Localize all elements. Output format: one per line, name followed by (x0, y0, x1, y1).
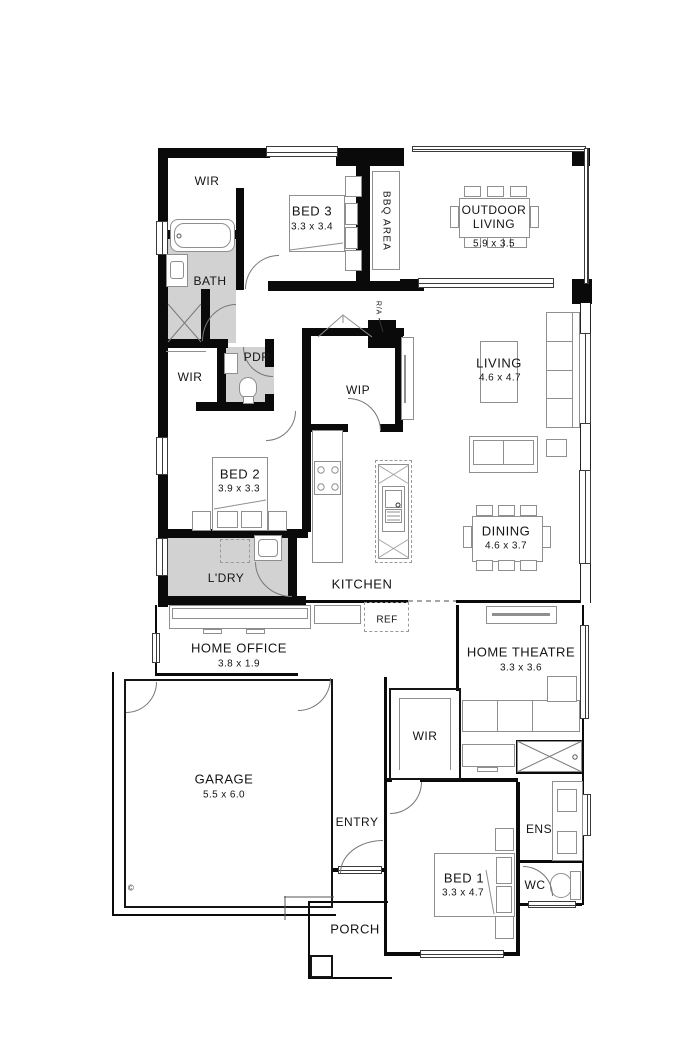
label-bbq-area: BBQ AREA (381, 191, 392, 251)
window (152, 633, 160, 663)
furniture-line (503, 440, 504, 465)
office-desk-top (172, 608, 308, 619)
room-dims-living: 4.6 x 4.7 (479, 373, 521, 384)
chair (520, 505, 537, 516)
chair (476, 560, 493, 571)
room-label-wc: WC (525, 878, 546, 892)
sink-bowl (385, 490, 402, 508)
wall-segment (112, 672, 114, 916)
copyright-mark: © (128, 884, 134, 893)
window (579, 333, 591, 424)
bedside-table (345, 176, 362, 197)
side-table (546, 439, 567, 457)
wall-segment (336, 148, 404, 166)
wall-segment (368, 320, 396, 348)
window (584, 148, 589, 284)
window (582, 794, 591, 836)
bedside-table (495, 828, 514, 851)
room-dims-home-office: 3.8 x 1.9 (218, 659, 260, 670)
bathtub-inner (174, 223, 231, 248)
wall-segment (158, 596, 306, 605)
furniture-line (399, 698, 451, 699)
door-swing (390, 782, 422, 814)
window (156, 437, 168, 475)
door-swing (266, 411, 296, 441)
furniture-line (497, 700, 498, 732)
room-label-wir-bed1: WIR (413, 729, 438, 743)
drawer (203, 629, 222, 634)
window (580, 625, 589, 719)
furniture-line (399, 698, 400, 770)
room-label-outdoor-living: OUTDOOR LIVING (455, 204, 533, 232)
wall-segment (268, 281, 370, 291)
room-dims-garage: 5.5 x 6.0 (203, 790, 245, 801)
door-swing (340, 840, 383, 873)
window (266, 146, 338, 157)
room-dims-outdoor-living: 5.9 x 3.5 (473, 239, 515, 250)
room-label-home-office: HOME OFFICE (191, 641, 287, 656)
window (579, 470, 591, 564)
tv-unit (401, 337, 414, 420)
washing-machine-space (220, 539, 250, 563)
room-label-wir-top: WIR (195, 174, 220, 188)
room-label-kitchen: KITCHEN (332, 577, 393, 592)
door-swing (348, 398, 381, 431)
kitchen-bench (312, 430, 343, 563)
wall-segment (384, 677, 387, 782)
room-dims-bed3: 3.3 x 3.4 (291, 222, 333, 233)
chair (542, 526, 551, 548)
room-label-home-theatre: HOME THEATRE (467, 645, 575, 660)
wall-segment (456, 600, 590, 603)
window (156, 538, 168, 576)
drawer (477, 767, 498, 772)
pillow (496, 886, 512, 913)
furniture-line (546, 398, 572, 399)
room-label-garage: GARAGE (195, 772, 254, 787)
wall-segment (516, 782, 520, 956)
furniture-line (546, 341, 572, 342)
drawer (246, 629, 265, 634)
chair (498, 505, 515, 516)
chair (520, 560, 537, 571)
wall-segment (236, 188, 244, 290)
room-dims-bed2: 3.9 x 3.3 (218, 484, 260, 495)
bedside-table (345, 250, 362, 271)
basin (557, 789, 577, 812)
room-label-ens: ENS (526, 822, 552, 836)
room-label-dining: DINING (482, 524, 531, 539)
room-label-bed2: BED 2 (220, 467, 260, 482)
pdr-vanity (224, 353, 238, 374)
wall-segment (265, 394, 274, 403)
pillow (345, 203, 358, 225)
bedside-table (268, 511, 287, 531)
chaise (547, 676, 577, 702)
wall-segment (158, 148, 270, 158)
room-label-ldry: L'DRY (208, 571, 244, 585)
furniture-line (492, 613, 550, 616)
room-label-pdr: PDR (244, 350, 271, 364)
window (412, 146, 586, 152)
label-return-air: R/A (375, 301, 382, 315)
wall-segment (380, 424, 403, 432)
shower (517, 741, 582, 772)
furniture-line (546, 370, 572, 371)
window (420, 950, 504, 958)
bedside-table (192, 511, 211, 531)
chair (476, 505, 493, 516)
room-dims-bed1: 3.3 x 4.7 (442, 888, 484, 899)
room-label-bed1: BED 1 (444, 871, 484, 886)
window (418, 278, 554, 288)
room-label-porch: PORCH (330, 922, 380, 937)
wc-toilet (550, 873, 572, 898)
room-label-living: LIVING (476, 356, 522, 371)
cooktop (314, 461, 341, 495)
chair (487, 186, 504, 197)
pdr-toilet-tank (243, 396, 254, 404)
tv-cabinet (462, 744, 515, 767)
wall-segment (456, 605, 459, 691)
room-dims-dining: 4.6 x 3.7 (485, 541, 527, 552)
window (156, 221, 168, 255)
porch-pillar (310, 955, 333, 978)
chair (463, 526, 472, 548)
wall-segment (155, 673, 298, 676)
pillow (345, 227, 358, 249)
room-label-bed3: BED 3 (292, 204, 332, 219)
chair (498, 560, 515, 571)
wall-segment (196, 402, 274, 411)
pillow (241, 511, 262, 528)
label-fridge: REF (376, 615, 397, 626)
wall-segment (572, 279, 592, 304)
cabinet (314, 605, 361, 624)
pillow (496, 857, 512, 884)
door-swing (245, 255, 279, 289)
pillow (217, 511, 238, 528)
chair (510, 186, 527, 197)
bath-basin (170, 261, 184, 279)
wc-toilet-tank (570, 871, 581, 900)
chair (464, 186, 481, 197)
basin (557, 831, 577, 854)
furniture-line (166, 351, 206, 352)
furniture-line (404, 355, 406, 403)
bedside-table (495, 916, 514, 939)
laundry-trough-bowl (258, 539, 278, 557)
theatre-sofa (462, 700, 580, 732)
room-label-bath: BATH (193, 274, 226, 288)
furniture-line (532, 700, 533, 732)
window (528, 901, 576, 908)
room-label-entry: ENTRY (336, 815, 379, 829)
sink-bowl (385, 509, 402, 523)
furniture-line (572, 312, 573, 428)
wall-segment (112, 914, 336, 916)
floor-plan-canvas: WIR BED 3 3.3 x 3.4 BBQ AREA OUTDOOR LIV… (0, 0, 700, 1045)
wall-segment (400, 279, 418, 289)
room-label-wir-mid: WIR (178, 370, 203, 384)
room-dims-home-theatre: 3.3 x 3.6 (500, 663, 542, 674)
furniture-line (450, 698, 451, 770)
room-label-wip: WIP (346, 383, 370, 397)
